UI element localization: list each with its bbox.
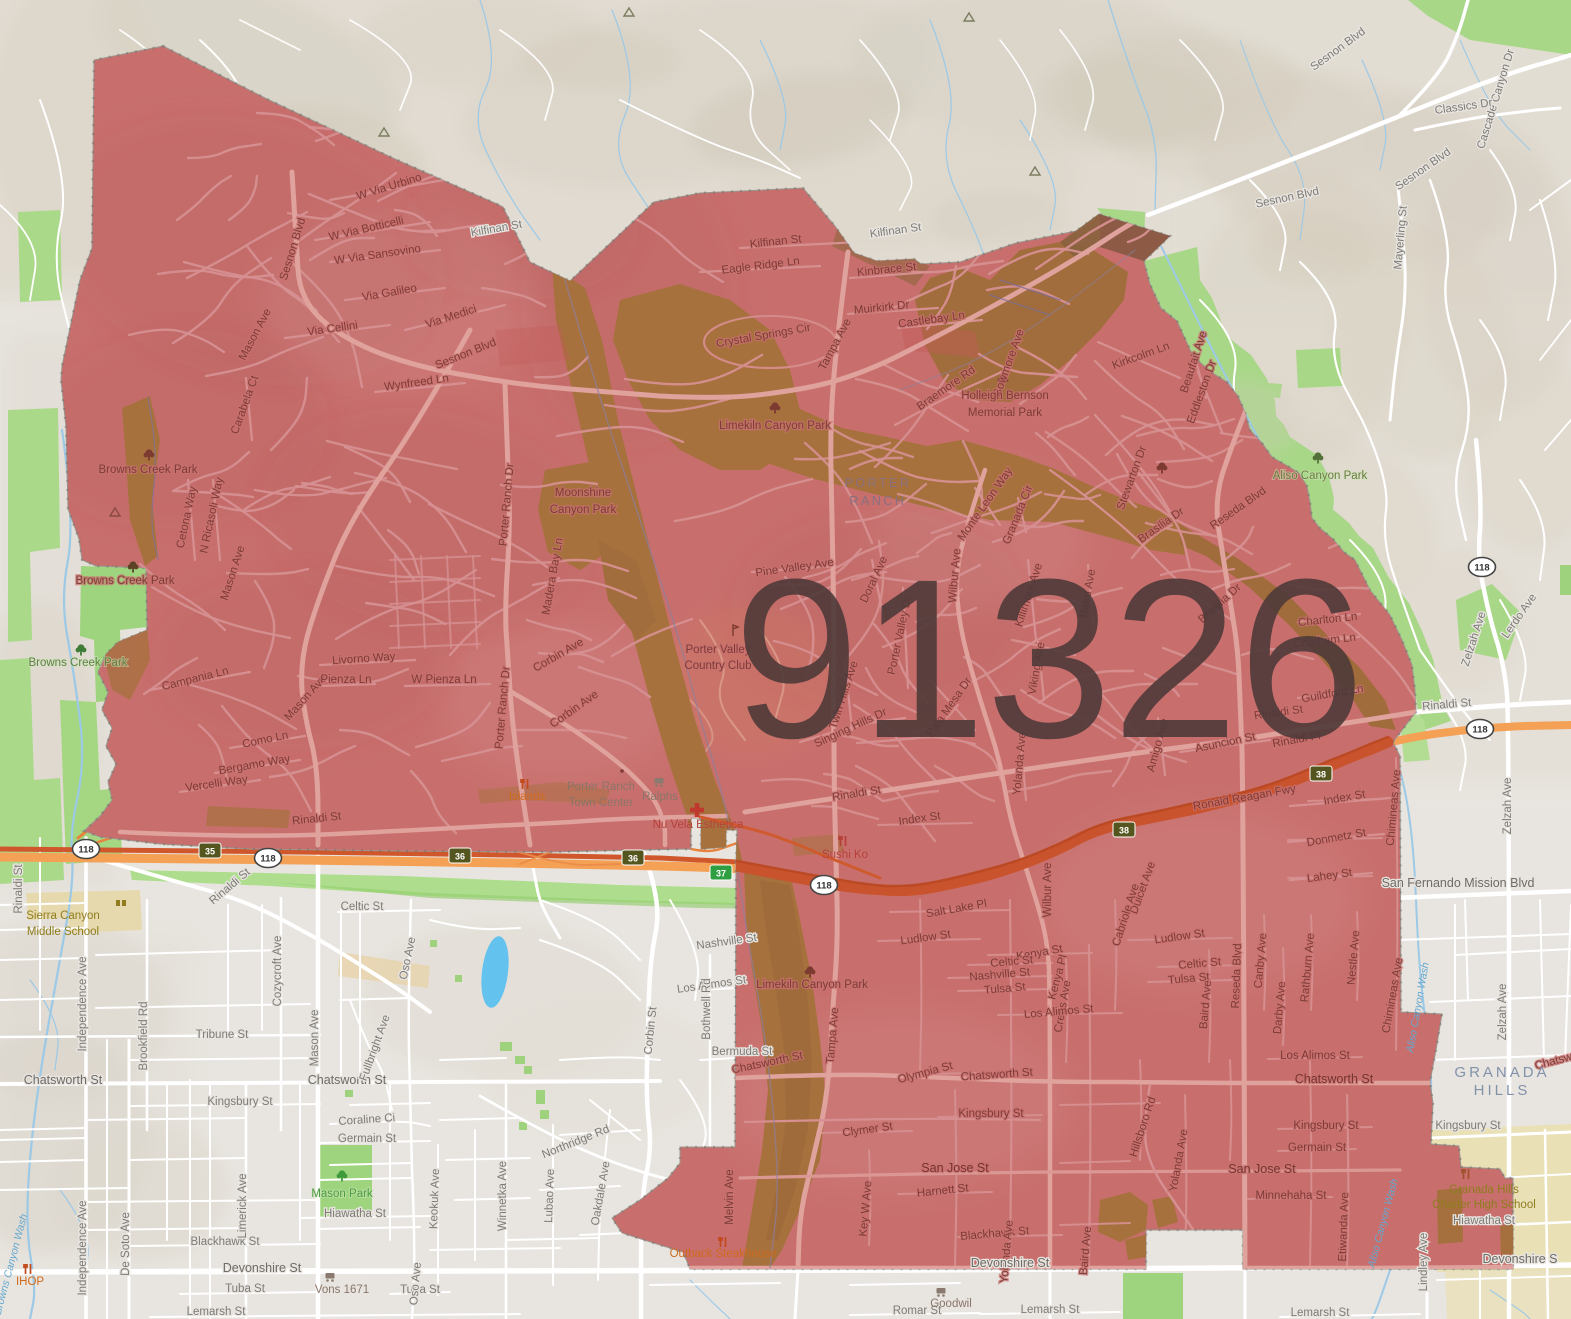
svg-text:GRANADA: GRANADA — [1454, 1064, 1549, 1081]
svg-text:Granada Hills: Granada Hills — [1449, 1184, 1519, 1196]
svg-text:91326: 91326 — [733, 533, 1364, 786]
svg-text:38: 38 — [1119, 826, 1129, 836]
svg-text:Mason Park: Mason Park — [311, 1188, 373, 1200]
svg-text:Lemarsh St: Lemarsh St — [187, 1306, 247, 1318]
svg-text:San Jose St: San Jose St — [1228, 1162, 1296, 1176]
svg-text:Minnehaha St: Minnehaha St — [1256, 1190, 1328, 1202]
svg-text:Kingsbury St: Kingsbury St — [1293, 1120, 1359, 1132]
svg-text:118: 118 — [816, 881, 831, 892]
svg-text:118: 118 — [78, 845, 93, 856]
svg-text:Zelzah Ave: Zelzah Ave — [1502, 778, 1514, 835]
svg-text:Etiwanda Ave: Etiwanda Ave — [1337, 1192, 1351, 1262]
svg-text:Reseda Blvd: Reseda Blvd — [1230, 943, 1244, 1009]
svg-text:Devonshire St: Devonshire St — [223, 1261, 302, 1275]
svg-text:Browns Creek Park: Browns Creek Park — [28, 657, 127, 669]
svg-text:Celtic St: Celtic St — [341, 901, 385, 913]
svg-text:Kingsbury St: Kingsbury St — [958, 1108, 1024, 1120]
svg-text:Kingsbury St: Kingsbury St — [207, 1096, 273, 1108]
svg-text:Canyon Park: Canyon Park — [550, 504, 617, 516]
svg-text:Lubao Ave: Lubao Ave — [543, 1169, 557, 1224]
svg-text:Pienza Ln: Pienza Ln — [320, 674, 371, 686]
svg-text:Rinaldi St: Rinaldi St — [13, 864, 25, 914]
svg-text:W Pienza Ln: W Pienza Ln — [411, 674, 476, 686]
svg-text:118: 118 — [260, 854, 275, 865]
svg-text:Devonshire S: Devonshire S — [1482, 1252, 1557, 1266]
svg-text:Aliso Canyon Park: Aliso Canyon Park — [1273, 470, 1368, 482]
svg-text:Town Center: Town Center — [569, 797, 634, 809]
svg-text:Brookfield Rd: Brookfield Rd — [138, 1001, 150, 1070]
svg-text:Goodwil: Goodwil — [930, 1298, 972, 1310]
svg-text:Kingsbury St: Kingsbury St — [1435, 1120, 1501, 1132]
svg-text:Chatsworth St: Chatsworth St — [308, 1073, 387, 1087]
svg-text:Limerick Ave: Limerick Ave — [237, 1174, 249, 1239]
svg-text:Wilbur Ave: Wilbur Ave — [1042, 863, 1054, 918]
svg-text:Limekiln Canyon Park: Limekiln Canyon Park — [719, 420, 831, 432]
svg-text:Mason Ave: Mason Ave — [309, 1010, 321, 1067]
svg-text:Keokuk Ave: Keokuk Ave — [428, 1168, 442, 1229]
svg-text:Germain St: Germain St — [338, 1133, 397, 1145]
svg-text:Blackhawk St: Blackhawk St — [190, 1236, 260, 1248]
svg-text:Cozycroft Ave: Cozycroft Ave — [272, 936, 284, 1007]
svg-text:Hiawatha St: Hiawatha St — [1453, 1215, 1516, 1227]
svg-text:Browns Creek Park: Browns Creek Park — [75, 575, 174, 587]
svg-text:Vons 1671: Vons 1671 — [315, 1284, 369, 1296]
svg-text:Porter Ranch: Porter Ranch — [567, 781, 635, 793]
svg-text:36: 36 — [455, 852, 465, 862]
svg-text:Outback Steakhouse: Outback Steakhouse — [670, 1248, 777, 1260]
svg-text:De Soto Ave: De Soto Ave — [120, 1212, 132, 1276]
svg-text:Ralphs: Ralphs — [642, 791, 678, 803]
svg-text:HILLS: HILLS — [1474, 1082, 1531, 1099]
svg-text:PORTER: PORTER — [845, 476, 912, 490]
svg-text:Chatsworth St: Chatsworth St — [24, 1073, 103, 1087]
svg-text:Germain St: Germain St — [1288, 1142, 1347, 1154]
svg-text:Charter High School: Charter High School — [1432, 1199, 1536, 1211]
svg-text:Independence Ave: Independence Ave — [77, 1200, 89, 1295]
svg-text:Lemarsh St: Lemarsh St — [1021, 1304, 1081, 1316]
svg-text:Independence Ave: Independence Ave — [77, 956, 89, 1051]
svg-text:118: 118 — [1472, 725, 1487, 736]
svg-text:Tuba St: Tuba St — [225, 1283, 266, 1295]
svg-text:RANCH: RANCH — [850, 494, 907, 508]
svg-text:San Fernando Mission Blvd: San Fernando Mission Blvd — [1382, 876, 1535, 890]
svg-text:Chatsworth St: Chatsworth St — [1295, 1072, 1374, 1086]
svg-text:Sierra Canyon: Sierra Canyon — [26, 910, 100, 922]
svg-text:Memorial Park: Memorial Park — [968, 407, 1042, 419]
svg-text:118: 118 — [1474, 563, 1489, 574]
svg-text:37: 37 — [716, 869, 726, 879]
svg-text:Lindley Ave: Lindley Ave — [1418, 1233, 1430, 1292]
svg-text:Tribune St: Tribune St — [196, 1029, 249, 1041]
svg-text:Nu Vela Esthetica: Nu Vela Esthetica — [653, 819, 744, 831]
svg-text:Browns Creek Park: Browns Creek Park — [98, 464, 197, 476]
svg-text:36: 36 — [628, 854, 638, 864]
svg-text:Los Alimos St: Los Alimos St — [1280, 1050, 1350, 1062]
svg-text:Hiawatha St: Hiawatha St — [324, 1208, 387, 1220]
svg-text:Middle School: Middle School — [27, 926, 99, 938]
svg-text:Sushi Ko: Sushi Ko — [822, 849, 868, 861]
svg-text:Bothwell Rd: Bothwell Rd — [701, 978, 713, 1039]
svg-text:35: 35 — [205, 847, 215, 857]
svg-text:Holleigh Bernson: Holleigh Bernson — [961, 390, 1049, 402]
svg-text:Winnetka Ave: Winnetka Ave — [497, 1161, 509, 1231]
svg-text:Islands: Islands — [509, 791, 546, 803]
svg-text:IHOP: IHOP — [16, 1276, 44, 1288]
svg-text:Devonshire St: Devonshire St — [971, 1256, 1050, 1270]
svg-text:Lemarsh St: Lemarsh St — [1291, 1307, 1351, 1319]
svg-text:San Jose St: San Jose St — [921, 1161, 989, 1175]
svg-text:Zelzah Ave: Zelzah Ave — [1497, 984, 1509, 1041]
svg-text:Moonshine: Moonshine — [555, 487, 611, 499]
svg-text:Melvin Ave: Melvin Ave — [724, 1169, 736, 1224]
svg-text:Bermuda St: Bermuda St — [712, 1046, 774, 1058]
svg-text:Limekiln Canyon Park: Limekiln Canyon Park — [756, 979, 868, 991]
